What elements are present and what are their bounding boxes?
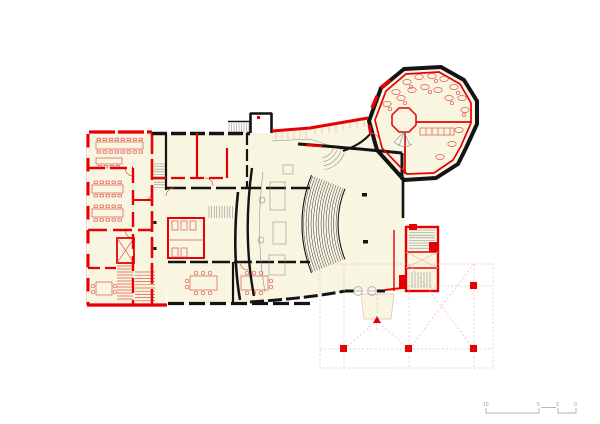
entrance-marker <box>257 116 260 119</box>
floor-plan-svg: 10 5 2 0 <box>0 0 600 424</box>
annex-red-fill <box>409 224 417 230</box>
octagon-window <box>369 125 371 135</box>
porch-floor <box>361 294 394 319</box>
scale-label-2: 2 <box>556 402 559 408</box>
column-dot <box>154 247 157 250</box>
floor-plan-canvas: 10 5 2 0 <box>0 0 600 424</box>
entrance <box>228 113 272 133</box>
octagon-shaft <box>392 108 416 132</box>
column-dot <box>154 221 157 224</box>
scale-bracket-left <box>486 408 539 413</box>
entrance-steps <box>228 122 250 134</box>
vestibule <box>250 113 272 133</box>
scale-label-0: 0 <box>574 402 577 408</box>
annex-red-fill <box>399 275 405 289</box>
scale-bar: 10 5 2 0 <box>483 402 577 413</box>
floor-base <box>88 67 477 319</box>
scale-label-10: 10 <box>483 402 489 408</box>
scale-label-5: 5 <box>537 402 540 408</box>
scale-bracket-right <box>558 408 576 413</box>
annex-red-fill <box>429 242 437 252</box>
